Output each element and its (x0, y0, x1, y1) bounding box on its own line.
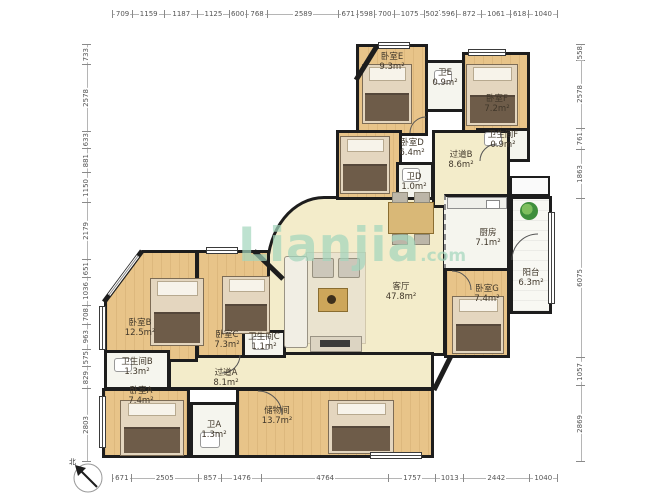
room-label-bedroom-d: 卧室D6.4m² (399, 138, 424, 158)
dimension-segment: 1757 (388, 474, 435, 482)
dimension-segment: 1075 (394, 10, 424, 18)
dimension-chain-top: 7091159118711256007682589671598700107550… (112, 8, 558, 20)
dimension-segment: 618 (510, 10, 528, 18)
room-label-toilet-d: 卫D1.0m² (401, 172, 426, 192)
dimension-segment: 2589 (267, 10, 338, 18)
room-label-bedroom-e: 卧室E9.3m² (379, 52, 404, 72)
dimension-segment: 651 (82, 259, 91, 277)
dimension-segment: 2442 (463, 474, 528, 482)
compass-north-icon: 北 (68, 456, 106, 496)
dimension-segment: 6075 (576, 198, 585, 357)
room-label-bedroom-c: 卧室C7.3m² (214, 330, 239, 350)
room-label-bedroom-b: 卧室B12.5m² (125, 318, 156, 338)
dimension-segment: 2505 (131, 474, 198, 482)
dimension-segment: 633 (82, 131, 91, 148)
dimension-segment: 1040 (528, 10, 558, 18)
dimension-segment: 1150 (82, 172, 91, 203)
dimension-segment: 1187 (164, 10, 197, 18)
room-label-storage: 储物间13.7m² (262, 406, 293, 426)
room-label-bathroom-b: 卫生间B1.3m² (121, 357, 152, 377)
dimension-segment: 708 (82, 305, 91, 324)
dimension-chain-right: 55825787611863607510572869 (574, 44, 587, 462)
floorplan-canvas: 7091159118711256007682589671598700107550… (0, 0, 666, 500)
dimension-segment: 872 (456, 10, 480, 18)
dimension-segment: 4764 (261, 474, 388, 482)
dimension-chain-bottom: 6712505857147647641757101324421040 (112, 472, 558, 484)
room-label-toilet-e: 卫E0.9m² (432, 68, 457, 88)
dimension-segment: 2803 (82, 388, 91, 462)
room-label-bedroom-f: 卧室F7.2m² (484, 94, 509, 114)
dimension-segment: 1057 (576, 357, 585, 385)
bay-window-icon (109, 256, 138, 295)
dimension-segment: 1125 (197, 10, 228, 18)
room-label-bedroom-a: 卧室A7.4m² (128, 386, 153, 406)
dimension-segment: 596 (439, 10, 456, 18)
dimension-segment: 1061 (481, 10, 511, 18)
room-label-bedroom-g: 卧室G7.4m² (474, 284, 499, 304)
room-label-bathroom-c: 卫生间C1.1m² (248, 332, 279, 352)
dimension-segment: 768 (246, 10, 268, 18)
dimension-segment: 1013 (435, 474, 463, 482)
dimension-segment: 857 (198, 474, 222, 482)
dimension-segment: 761 (576, 128, 585, 149)
room-label-hallway-b: 过道B8.6m² (448, 150, 473, 170)
dimension-segment: 600 (229, 10, 246, 18)
room-label-toilet-a: 卫A1.3m² (201, 420, 226, 440)
dimension-segment: 502 (424, 10, 439, 18)
dimension-segment: 700 (374, 10, 394, 18)
dimension-segment: 671 (338, 10, 357, 18)
room-label-bathroom-f: 卫生间F0.9m² (488, 130, 518, 150)
dimension-segment: 2578 (82, 64, 91, 131)
dimension-segment: 1040 (529, 474, 558, 482)
dimension-segment: 2869 (576, 385, 585, 462)
dimension-segment: 1863 (576, 149, 585, 198)
dimension-segment: 558 (576, 44, 585, 60)
dimension-chain-left: 7332578633881115021796511036708963575829… (80, 44, 93, 462)
dimension-segment: 1159 (132, 10, 164, 18)
dimension-segment: 1476 (221, 474, 261, 482)
lianjia-watermark: Lianjia.com (238, 222, 466, 269)
watermark-suffix: .com (420, 246, 466, 266)
room-label-kitchen: 厨房7.1m² (475, 228, 500, 248)
dimension-segment: 733 (82, 44, 91, 64)
dimension-segment: 709 (112, 10, 132, 18)
dimension-segment: 881 (82, 148, 91, 172)
dimension-segment: 2578 (576, 60, 585, 128)
dimension-segment: 598 (357, 10, 374, 18)
dimension-segment: 1036 (82, 277, 91, 305)
room-label-hallway-a: 过道A8.1m² (213, 368, 238, 388)
dimension-segment: 671 (112, 474, 131, 482)
dimension-segment: 963 (82, 324, 91, 350)
dimension-segment: 2179 (82, 202, 91, 259)
dimension-segment: 575 (82, 349, 91, 365)
room-label-balcony: 阳台6.3m² (518, 268, 543, 288)
room-label-living-room: 客厅47.8m² (386, 282, 417, 302)
svg-text:北: 北 (69, 458, 76, 466)
dimension-segment: 829 (82, 366, 91, 388)
